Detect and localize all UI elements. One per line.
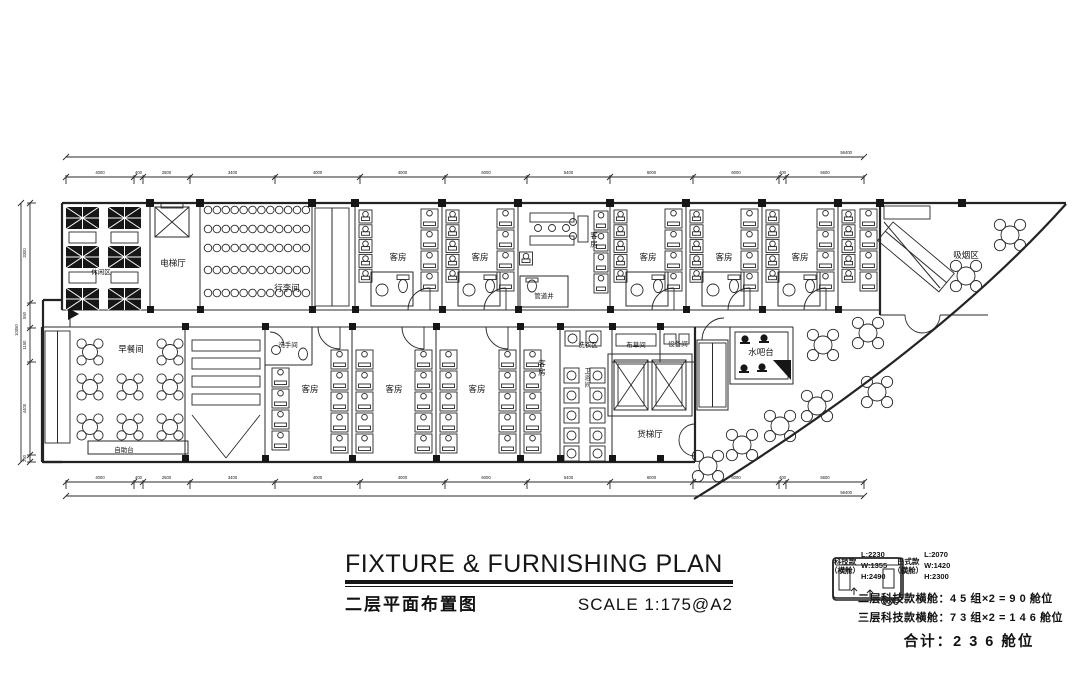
svg-text:1150: 1150 [22,340,27,350]
svg-text:4000: 4000 [313,170,323,175]
svg-text:6000: 6000 [731,170,741,175]
pod-japanese: 日式款 （横舱） L:2070 W:1420 H:2300 [893,550,950,583]
svg-text:4000: 4000 [398,475,408,480]
title-rule [345,580,733,587]
pod-legend: 科技款 （横舱） L:2230 W:1355 H:2490 日式款 （横舱） [830,550,1080,651]
svg-text:400: 400 [135,475,143,480]
stairwell-south [699,318,726,407]
storage-racks [192,340,260,458]
room-label-pipe-shaft: 管道井 [534,291,554,300]
svg-text:4000: 4000 [398,170,408,175]
stairwell-north [315,208,349,306]
drawing-sheet: 5640040004002500340040004000600054006000… [0,0,1080,682]
svg-text:56400: 56400 [840,490,852,495]
room-label-linen: 布草间 [626,340,646,349]
room-label-laundry: 洗衣区 [578,340,598,349]
svg-text:5600: 5600 [820,475,830,480]
room-label-guestroom: 客房 [589,230,598,249]
freight-elevator-shafts [614,360,695,456]
svg-text:400: 400 [779,170,787,175]
room-label-freight-elevator: 货梯厅 [637,429,663,439]
svg-text:5400: 5400 [564,170,574,175]
svg-text:5600: 5600 [820,170,830,175]
room-label-guestroom: 客房 [301,384,318,394]
svg-text:6000: 6000 [731,475,741,480]
room-label-guestroom: 客房 [389,252,406,262]
svg-text:56400: 56400 [840,150,852,155]
elevator-shaft [155,203,189,237]
svg-text:6000: 6000 [481,475,491,480]
svg-text:3300: 3300 [22,248,27,258]
room-label-smoking: 吸烟区 [953,250,979,260]
plan-title-en: FIXTURE & FURNISHING PLAN [345,550,733,579]
room-label-washroom: 洗手间 [278,340,298,349]
svg-text:400: 400 [135,170,143,175]
svg-text:2500: 2500 [162,475,172,480]
svg-text:6000: 6000 [481,170,491,175]
svg-text:3400: 3400 [228,475,238,480]
fixed-fixtures [45,203,954,458]
room-label-water-bar: 水吧台 [748,347,774,357]
pod-japanese-diagram [830,550,908,608]
room-label-guestroom: 客房 [639,252,656,262]
room-label-guestroom: 客房 [791,252,808,262]
svg-text:4000: 4000 [313,475,323,480]
room-labels: 休闲区 电梯厅 行李间 客房 客房 客房 客房 客房 客房 管道井 吸烟区 早餐… [91,230,979,454]
stairwell-smoking [878,206,955,292]
plan-title-cn: 二层平面布置图 [345,590,478,615]
svg-text:10050: 10050 [14,324,19,336]
svg-text:3400: 3400 [228,170,238,175]
room-label-guestroom: 客房 [537,358,546,377]
svg-text:4400: 4400 [22,403,27,413]
stairwell-west [45,308,79,443]
buffet-counter [88,441,188,454]
svg-text:4000: 4000 [95,170,105,175]
room-label-elevator-hall: 电梯厅 [160,258,186,268]
svg-text:5400: 5400 [564,475,574,480]
plan-scale: SCALE 1:175@A2 [578,595,733,615]
svg-text:550: 550 [22,311,27,319]
pipe-shaft-room [520,276,568,307]
room-label-luggage: 行李间 [274,283,300,293]
workstation-desks [530,213,588,245]
room-label-equipment: 设备间 [668,339,688,348]
room-label-guestroom: 客房 [471,252,488,262]
room-label-guestroom: 客房 [385,384,402,394]
room-label-buffet: 自助台 [114,445,134,454]
capacity-total: 合计：2 3 6 舱位 [858,630,1080,651]
svg-text:2500: 2500 [162,170,172,175]
svg-text:6000: 6000 [647,475,657,480]
room-label-guestroom: 客房 [468,384,485,394]
svg-text:4000: 4000 [95,475,105,480]
pod-japanese-dims: L:2070 W:1420 H:2300 [924,550,950,583]
capacity-note-floor3: 三层科技款横舱：7 3 组×2 = 1 4 6 舱位 [858,609,1080,629]
room-label-breakfast: 早餐间 [118,344,144,354]
svg-text:6000: 6000 [647,170,657,175]
room-label-guestroom: 客房 [715,252,732,262]
room-label-bath: 卫浴间 [583,368,590,389]
svg-text:400: 400 [779,475,787,480]
room-label-leisure: 休闲区 [91,267,111,276]
title-block: FIXTURE & FURNISHING PLAN 二层平面布置图 SCALE … [345,550,733,615]
